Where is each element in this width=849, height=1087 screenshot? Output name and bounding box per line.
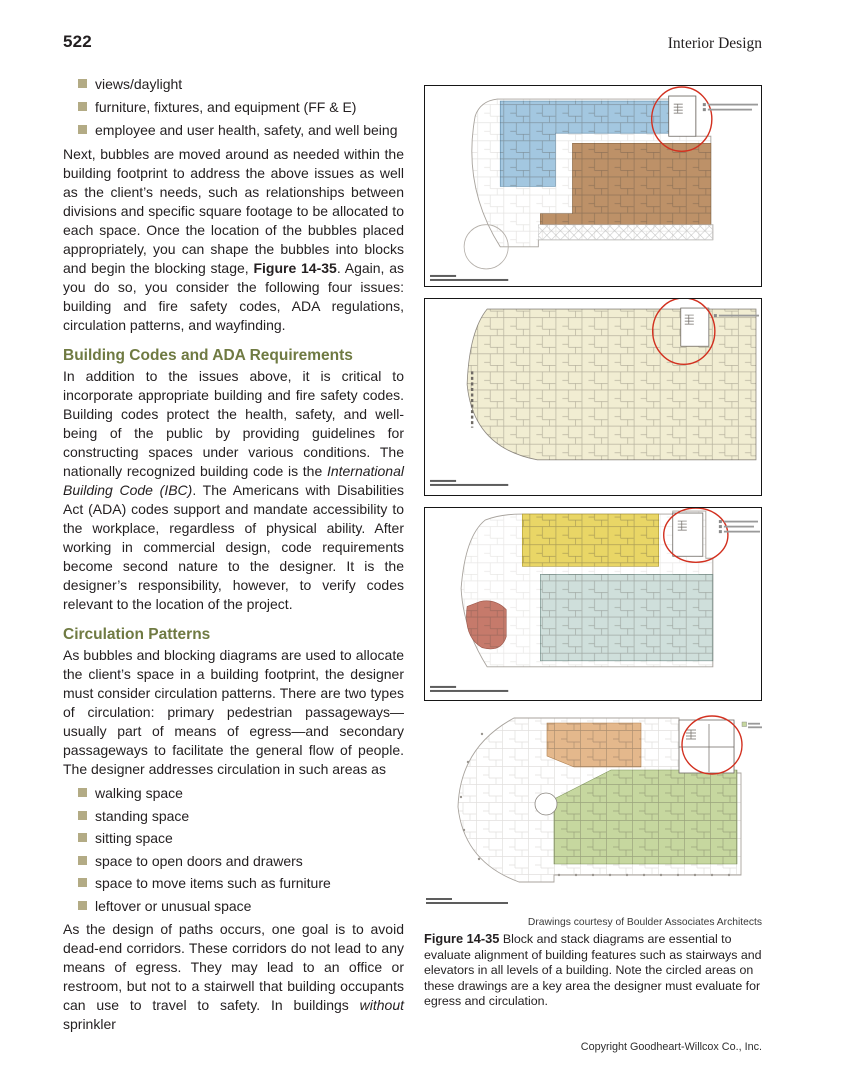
list-item-label: furniture, fixtures, and equipment (FF &… bbox=[95, 99, 356, 115]
paragraph-circulation: As bubbles and blocking diagrams are use… bbox=[63, 646, 404, 779]
micro-caption bbox=[430, 480, 508, 486]
paragraph-text: sprinkler bbox=[63, 1016, 116, 1032]
list-item: furniture, fixtures, and equipment (FF &… bbox=[78, 99, 404, 115]
floor-plan-drawing bbox=[425, 299, 761, 495]
roof-hatch-area bbox=[538, 225, 713, 240]
list-item: employee and user health, safety, and we… bbox=[78, 122, 404, 138]
micro-caption bbox=[430, 686, 508, 692]
paragraph-text: . The Americans with Disabilities Act (A… bbox=[63, 482, 404, 612]
micro-legend bbox=[742, 722, 762, 728]
paragraph-text: As the design of paths occurs, one goal … bbox=[63, 921, 404, 1013]
bullet-square-icon bbox=[78, 102, 87, 111]
section-heading-circulation: Circulation Patterns bbox=[63, 626, 404, 644]
paragraph-text: Next, bubbles are moved around as needed… bbox=[63, 146, 404, 276]
bullet-square-icon bbox=[78, 79, 87, 88]
bullet-square-icon bbox=[78, 901, 87, 910]
list-item: leftover or unusual space bbox=[78, 898, 404, 914]
micro-legend bbox=[719, 520, 760, 533]
floor-plan-drawing bbox=[425, 508, 761, 700]
room-lines bbox=[467, 309, 756, 460]
list-item-label: employee and user health, safety, and we… bbox=[95, 122, 398, 138]
floor-plan-panel-1 bbox=[424, 85, 762, 287]
italic-term: without bbox=[360, 997, 404, 1013]
text-column: views/daylight furniture, fixtures, and … bbox=[63, 76, 404, 1034]
floor-plan-drawing bbox=[425, 86, 761, 286]
list-item-label: walking space bbox=[95, 785, 183, 801]
floor-plan-panel-4 bbox=[424, 712, 762, 912]
bullet-square-icon bbox=[78, 856, 87, 865]
paragraph-intro: Next, bubbles are moved around as needed… bbox=[63, 145, 404, 335]
bullet-square-icon bbox=[78, 878, 87, 887]
list-item: space to move items such as furniture bbox=[78, 875, 404, 891]
floor-plan-drawing bbox=[424, 712, 762, 912]
section-heading-building-codes: Building Codes and ADA Requirements bbox=[63, 347, 404, 365]
stair-tower bbox=[681, 308, 709, 346]
room-lines bbox=[466, 601, 506, 649]
list-item: views/daylight bbox=[78, 76, 404, 92]
paragraph-building-codes: In addition to the issues above, it is c… bbox=[63, 367, 404, 614]
bullet-square-icon bbox=[78, 788, 87, 797]
micro-legend bbox=[703, 103, 758, 111]
figure-credit: Drawings courtesy of Boulder Associates … bbox=[424, 917, 762, 928]
circulation-bullet-list: walking space standing space sitting spa… bbox=[63, 785, 404, 914]
intro-bullet-list: views/daylight furniture, fixtures, and … bbox=[63, 76, 404, 138]
micro-caption bbox=[426, 898, 508, 904]
list-item-label: space to open doors and drawers bbox=[95, 853, 303, 869]
bullet-square-icon bbox=[78, 125, 87, 134]
list-item: sitting space bbox=[78, 830, 404, 846]
figure-caption: Figure 14-35 Block and stack diagrams ar… bbox=[424, 931, 762, 1010]
list-item: standing space bbox=[78, 808, 404, 824]
list-item: space to open doors and drawers bbox=[78, 853, 404, 869]
floor-plan-panel-2 bbox=[424, 298, 762, 496]
rotunda-outline bbox=[535, 793, 557, 815]
stair-tower bbox=[673, 513, 703, 556]
bullet-square-icon bbox=[78, 833, 87, 842]
micro-caption bbox=[430, 275, 508, 281]
list-item-label: leftover or unusual space bbox=[95, 898, 251, 914]
floor-plan-panel-3 bbox=[424, 507, 762, 701]
copyright-notice: Copyright Goodheart-Willcox Co., Inc. bbox=[581, 1041, 762, 1053]
paragraph-closing: As the design of paths occurs, one goal … bbox=[63, 920, 404, 1034]
list-item-label: sitting space bbox=[95, 830, 173, 846]
room-lines bbox=[547, 723, 641, 767]
room-lines bbox=[540, 574, 713, 660]
list-item-label: views/daylight bbox=[95, 76, 182, 92]
figure-label: Figure 14-35 bbox=[424, 931, 499, 946]
figure-column: Drawings courtesy of Boulder Associates … bbox=[424, 85, 762, 1022]
bullet-square-icon bbox=[78, 811, 87, 820]
book-page: 522 Interior Design views/daylight furni… bbox=[0, 0, 849, 1087]
running-head: Interior Design bbox=[668, 35, 762, 53]
list-item-label: space to move items such as furniture bbox=[95, 875, 331, 891]
list-item-label: standing space bbox=[95, 808, 189, 824]
list-item: walking space bbox=[78, 785, 404, 801]
stair-tower bbox=[669, 96, 696, 136]
room-lines bbox=[522, 514, 658, 566]
figure-reference: Figure 14-35 bbox=[253, 260, 336, 276]
page-number: 522 bbox=[63, 32, 92, 52]
